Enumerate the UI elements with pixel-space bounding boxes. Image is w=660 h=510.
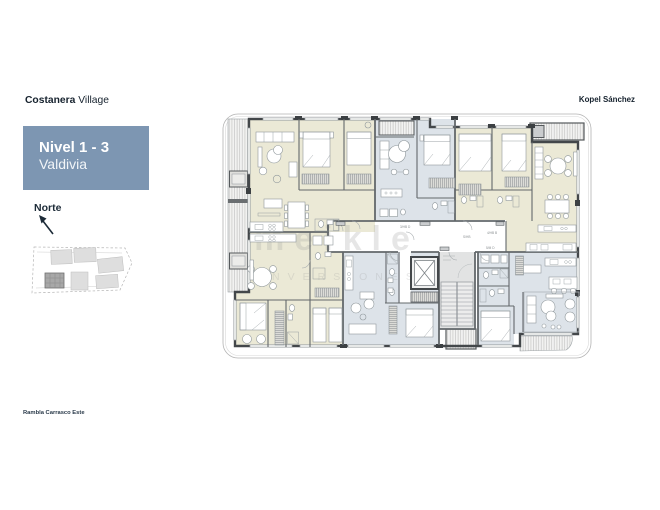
svg-text:Rambla Carrasco Este: Rambla Carrasco Este xyxy=(23,410,85,416)
svg-text:Costanera Village: Costanera Village xyxy=(25,95,109,106)
svg-text:S/HB: S/HB xyxy=(463,235,470,239)
svg-text:Valdivia: Valdivia xyxy=(39,156,87,172)
svg-text:Kopel Sánchez: Kopel Sánchez xyxy=(579,95,635,104)
svg-text:5/M D: 5/M D xyxy=(486,246,495,250)
svg-text:4/HB B: 4/HB B xyxy=(487,231,497,235)
svg-text:Norte: Norte xyxy=(34,202,62,214)
svg-text:3/HB D: 3/HB D xyxy=(400,225,411,229)
svg-text:INVERSIONES: INVERSIONES xyxy=(261,271,421,283)
svg-text:Nivel 1 - 3: Nivel 1 - 3 xyxy=(39,139,109,156)
